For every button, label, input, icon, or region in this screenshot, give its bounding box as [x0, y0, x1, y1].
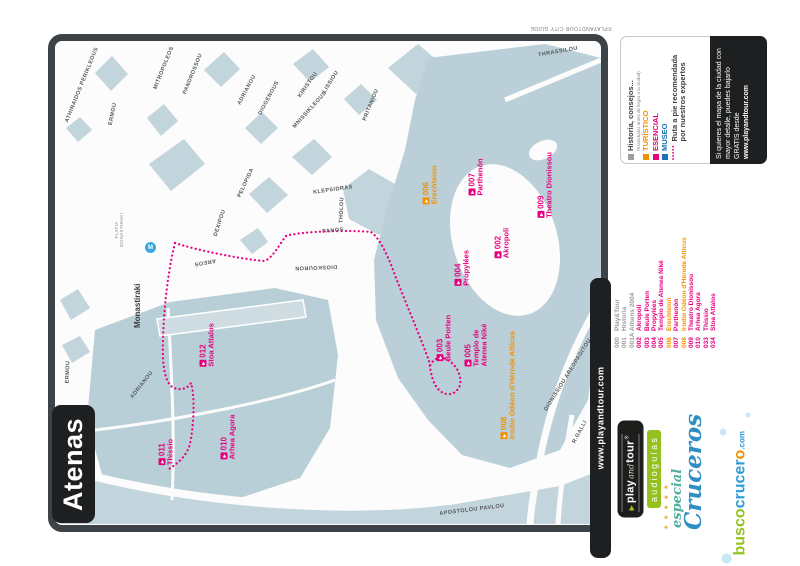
poi-list-label: Arhea Agora: [695, 292, 702, 331]
splash-decoration: [721, 554, 731, 564]
promo-url: www.playandtour.com: [743, 85, 750, 159]
playandtour-url: www.playandtour.com: [596, 367, 606, 470]
legend-item-text: TURÍSTICO: [642, 111, 650, 151]
city-title: Atenas: [58, 417, 89, 510]
logo-tour: tour: [624, 440, 636, 463]
buscocrucero-inner: buscocrucero.com: [731, 401, 755, 556]
logo-play: play: [624, 480, 636, 503]
legend-swatch-icon: [627, 154, 633, 160]
poi-list-number: 009: [688, 331, 695, 348]
poi-list-label: Thissio: [703, 308, 710, 331]
poi-list-label: Historia: [621, 307, 628, 331]
logo-and: and: [626, 464, 635, 479]
poi-list-number: 006: [666, 331, 673, 348]
city-title-box: Atenas: [52, 405, 95, 523]
promo-sentence: Si quieres el mapa de la ciudad con mayo…: [716, 48, 741, 159]
play-triangle-icon: ▶: [627, 505, 635, 510]
poi-list-label: Parthenón: [673, 299, 680, 331]
legend-swatch-icon: [643, 154, 649, 160]
legend-item: MUSEO: [661, 40, 669, 160]
audioguias-bar: audioguías: [645, 423, 664, 515]
poi-list-number: 034: [710, 331, 717, 348]
poi-list-number: 002: [636, 331, 643, 348]
legend-item-label: ESENCIAL: [651, 113, 659, 151]
poi-list-number: 003: [644, 331, 651, 348]
poi-list-item: 003Beule Porten: [644, 250, 651, 348]
legend-item: •••••Ruta a pie recomendada por nuestros…: [670, 40, 686, 160]
poi-list-number: 008: [681, 331, 688, 348]
legend-box: Historia, consejos...(Escúchalos antes d…: [620, 36, 710, 164]
poi-list-number: 010: [695, 331, 702, 348]
cruceros-word: Cruceros: [682, 402, 705, 530]
poi-list-label: Erechteion: [666, 297, 673, 331]
poi-list-item: 001AAthens 2004: [629, 250, 636, 348]
promo-text: Si quieres el mapa de la ciudad con mayo…: [715, 41, 763, 159]
busco-word: busco: [731, 508, 748, 555]
poi-list-number: 001: [621, 331, 628, 348]
legend-swatch-icon: [652, 154, 658, 160]
playandtour-logo-inner: ▶playandtour®: [617, 421, 643, 518]
buscocrucero-logo: buscocrucero.com: [722, 398, 764, 558]
scanned-map-page: ATHINAIDOS PERIKLEOUSERMOUMITROPOLEOSPAN…: [0, 0, 800, 566]
legend-item-label: Ruta a pie recomendada por nuestros expe…: [670, 55, 686, 142]
poi-list-item: 007Parthenón: [673, 250, 680, 348]
poi-list-label: Propylées: [651, 300, 658, 331]
legend-swatch-icon: [662, 154, 668, 160]
playandtour-url-tab: www.playandtour.com: [590, 278, 611, 558]
poi-list-item: 002Akropoli: [636, 250, 643, 348]
splash-decoration: [745, 413, 750, 418]
legend-item-label: Historia, consejos...: [626, 71, 634, 151]
especial-cruceros-inner: ★ ★ ★ ★ ★ especial Cruceros: [664, 402, 706, 530]
copyright-note: ©PLAYANDTOUR CITY GUIDE: [534, 23, 612, 33]
poi-list-label: Templo de Atenea Niké: [658, 260, 665, 331]
legend-item-subtext: (Escúchalos antes de llegar a la ciudad): [635, 71, 640, 151]
legend-item-text: Historia, consejos...(Escúchalos antes d…: [626, 71, 640, 151]
legend-item-text: ESENCIAL: [651, 113, 659, 151]
orange-o: o: [731, 450, 748, 460]
poi-list-item: 034Stoa Attalos: [710, 250, 717, 348]
poi-list-label: Irodio Odéon d'Hérode Atticus: [681, 237, 688, 331]
audioguias-label: audioguías: [648, 430, 662, 508]
legend-items: Historia, consejos...(Escúchalos antes d…: [625, 40, 707, 160]
poi-list-item: 010Arhea Agora: [695, 250, 702, 348]
legend-item: Historia, consejos...(Escúchalos antes d…: [626, 40, 640, 160]
poi-list-item: 005Templo de Atenea Niké: [658, 250, 665, 348]
poi-list-number: 005: [658, 331, 665, 348]
especial-cruceros-logo: ★ ★ ★ ★ ★ especial Cruceros: [663, 400, 707, 532]
crucer-word: crucer: [731, 459, 748, 508]
splash-decoration: [719, 429, 726, 436]
legend-item-label: MUSEO: [661, 123, 669, 151]
poi-list-number: 004: [651, 331, 658, 348]
poi-list-number: 000: [614, 331, 621, 348]
poi-list-label: Beule Porten: [644, 291, 651, 331]
poi-list-box: 000Play&Tour001Historia001AAthens 200400…: [614, 250, 718, 348]
poi-list-item: 008Irodio Odéon d'Hérode Atticus: [681, 250, 688, 348]
playandtour-wordmark: ▶playandtour®: [621, 435, 639, 512]
poi-list-item: 033Thissio: [703, 250, 710, 348]
poi-list-label: Theatro Dionissou: [688, 274, 695, 331]
registered-mark: ®: [624, 436, 630, 440]
legend-item-text: MUSEO: [661, 123, 669, 151]
legend-item: TURÍSTICO: [642, 40, 650, 160]
poi-list: 000Play&Tour001Historia001AAthens 200400…: [614, 250, 718, 348]
poi-list-number: 001A: [629, 331, 636, 348]
playandtour-logo: ▶playandtour®: [615, 420, 645, 518]
route-dots-icon: •••••: [670, 144, 677, 160]
metro-station-label: Monastiraki: [126, 268, 152, 328]
poi-list-number: 033: [703, 331, 710, 348]
poi-list-label: Athens 2004: [629, 293, 636, 331]
legend-item: ESENCIAL: [651, 40, 659, 160]
metro-station-icon: M: [145, 242, 156, 253]
poi-list-number: 007: [673, 331, 680, 348]
dotcom-suffix: .com: [737, 431, 746, 450]
legend-item-label: TURÍSTICO: [642, 111, 650, 151]
poi-list-item: 009Theatro Dionissou: [688, 250, 695, 348]
poi-list-item: 001Historia: [621, 250, 628, 348]
poi-list-item: 006Erechteion: [666, 250, 673, 348]
poi-list-label: Stoa Attalos: [710, 293, 717, 331]
poi-list-item: 004Propylées: [651, 250, 658, 348]
promo-box: Si quieres el mapa de la ciudad con mayo…: [710, 36, 767, 164]
poi-list-label: Akropoli: [636, 305, 643, 331]
platia-monastiraki-label: PLATIA MONASTIRAKI: [108, 210, 132, 250]
poi-list-label: Play&Tour: [614, 299, 621, 331]
poi-list-item: 000Play&Tour: [614, 250, 621, 348]
legend-item-text: Ruta a pie recomendada por nuestros expe…: [670, 55, 686, 142]
